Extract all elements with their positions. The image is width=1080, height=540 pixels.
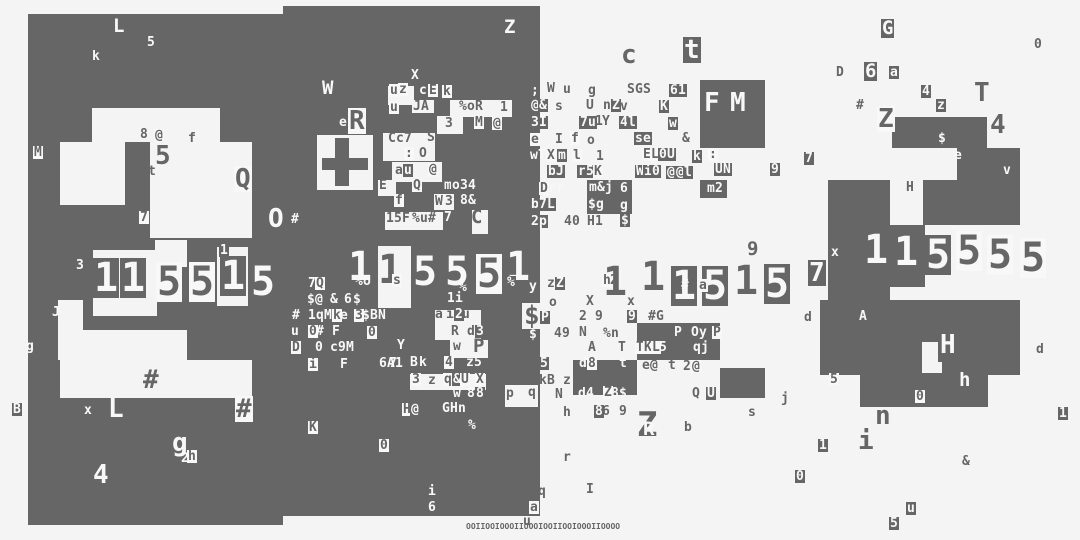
glyph: x xyxy=(84,404,92,417)
glyph: s xyxy=(748,406,756,419)
glyph: 6 xyxy=(379,357,387,370)
glyph: h xyxy=(959,371,970,390)
glyph: z xyxy=(428,374,436,387)
glyph: G xyxy=(442,402,450,415)
glyph: 5 xyxy=(659,341,667,354)
glyph: $ xyxy=(588,198,596,211)
glyph: 5 xyxy=(476,254,502,294)
glyph: p xyxy=(506,387,514,400)
glyph: R xyxy=(475,100,483,113)
glyph: E xyxy=(379,179,387,192)
glyph: r xyxy=(556,182,564,195)
glyph: d xyxy=(1036,343,1044,356)
glyph: F xyxy=(704,90,720,116)
glyph: i xyxy=(858,428,874,454)
glyph: 8 xyxy=(140,128,148,141)
glyph: # xyxy=(316,325,324,338)
glyph: 0 xyxy=(795,470,805,483)
glyph: 9 xyxy=(338,341,346,354)
glyph: r xyxy=(548,182,556,195)
glyph: f xyxy=(394,194,404,207)
glyph: U xyxy=(460,373,470,386)
glyph: s xyxy=(392,274,402,287)
glyph: 5 xyxy=(189,262,215,302)
glyph: 5 xyxy=(156,262,182,302)
blob-block xyxy=(957,300,1020,375)
glyph: x xyxy=(627,295,635,308)
glyph: g xyxy=(596,198,604,211)
glyph: n xyxy=(603,99,611,112)
glyph: 5 xyxy=(251,262,275,302)
glyph: 5 xyxy=(394,212,402,225)
glyph: q xyxy=(538,485,546,498)
glyph: g xyxy=(26,340,34,353)
glyph: : xyxy=(404,147,414,160)
glyph: X xyxy=(586,295,594,308)
glyph: 1 xyxy=(1058,407,1068,420)
glyph: t xyxy=(619,357,627,370)
glyph: N xyxy=(378,309,386,322)
glyph: 7 xyxy=(808,260,826,286)
blob-block xyxy=(957,148,1020,225)
glyph: 0 xyxy=(379,439,389,452)
glyph: g xyxy=(588,84,596,97)
glyph: S xyxy=(427,131,435,144)
glyph: n xyxy=(875,403,891,429)
glyph: O xyxy=(691,326,699,339)
glyph: t xyxy=(668,359,676,372)
glyph: O xyxy=(419,147,427,160)
glyph: A xyxy=(421,100,429,113)
glyph: 7 xyxy=(404,132,412,145)
bottom-strip-text: OOIIOOIOOOIIOOOIOOIIOOIOOOIIOOOO xyxy=(466,523,620,531)
glyph: 6 xyxy=(864,62,877,81)
glyph: 1 xyxy=(677,84,687,97)
glyph: $ xyxy=(529,328,537,341)
glyph: $ xyxy=(938,132,946,145)
glyph: G xyxy=(656,310,664,323)
glyph: a xyxy=(889,66,899,79)
glyph: F xyxy=(340,358,348,371)
glyph: e xyxy=(642,132,652,145)
glyph: 9 xyxy=(627,310,637,323)
glyph: # xyxy=(428,212,436,225)
glyph: @ xyxy=(650,359,658,372)
glyph: F xyxy=(332,325,340,338)
glyph: h xyxy=(388,326,396,339)
glyph: u xyxy=(291,325,299,338)
glyph: & xyxy=(597,181,605,194)
glyph: 1 xyxy=(120,258,146,298)
glyph: C xyxy=(471,208,482,227)
glyph: z xyxy=(936,99,946,112)
glyph: ; xyxy=(530,84,540,97)
glyph: M xyxy=(33,146,43,159)
glyph: & xyxy=(467,194,477,207)
glyph: I xyxy=(538,116,548,129)
glyph: i xyxy=(428,485,436,498)
glyph: u xyxy=(420,212,428,225)
glyph: w xyxy=(530,149,538,162)
glyph: s xyxy=(555,100,563,113)
glyph: 5 xyxy=(1020,238,1046,278)
glitch-art-canvas: L5kM8@f5tQ7O#31115515Jg7Q$@&6$#1qMke3$BN… xyxy=(0,0,1080,540)
glyph: 1 xyxy=(818,439,828,452)
glyph: m xyxy=(557,149,567,162)
glyph: 8 xyxy=(611,387,619,400)
glyph: Q xyxy=(315,277,325,290)
glyph: 4 xyxy=(586,387,594,400)
glyph: M xyxy=(730,90,746,116)
glyph: y xyxy=(699,326,707,339)
glyph: u xyxy=(403,164,413,177)
glyph: U xyxy=(586,99,594,112)
glyph: z xyxy=(547,277,555,290)
glyph: X xyxy=(546,149,556,162)
glyph: C xyxy=(388,132,396,145)
glyph: r xyxy=(563,451,571,464)
glyph: o xyxy=(363,275,371,288)
glyph: K xyxy=(593,165,603,178)
glyph: 5 xyxy=(155,143,171,169)
glyph: w xyxy=(453,340,461,353)
glyph: G xyxy=(881,19,894,38)
glyph: % xyxy=(459,100,467,113)
glyph: l xyxy=(627,116,637,129)
glyph: X xyxy=(475,373,485,386)
blob-block xyxy=(58,300,83,330)
glyph: z xyxy=(466,356,474,369)
glyph: n xyxy=(611,327,619,340)
glyph: W xyxy=(435,195,443,208)
glyph: 5 xyxy=(956,231,982,271)
glyph: 0 xyxy=(315,341,323,354)
glyph: a xyxy=(395,164,403,177)
glyph: 1 xyxy=(500,101,508,114)
glyph: 3 xyxy=(445,195,453,208)
glyph: B xyxy=(370,309,378,322)
glyph: $ xyxy=(307,293,315,306)
glyph: 3 xyxy=(76,259,84,272)
glyph: $ xyxy=(524,303,540,329)
glyph: L xyxy=(108,396,124,422)
glyph: & xyxy=(682,132,690,145)
glyph: 9 xyxy=(562,327,570,340)
glyph: K xyxy=(308,421,318,434)
glyph: k xyxy=(92,50,100,63)
glyph: v xyxy=(1003,164,1011,177)
glyph: 5 xyxy=(146,36,156,49)
glyph: u xyxy=(563,83,571,96)
glyph: q xyxy=(693,341,701,354)
glyph: $ xyxy=(620,214,630,227)
glyph: 3 xyxy=(445,117,453,130)
glyph: 4 xyxy=(467,179,477,192)
glyph: 5 xyxy=(987,235,1013,275)
glyph: T xyxy=(618,341,626,354)
glyph: I xyxy=(586,483,594,496)
glyph: A xyxy=(859,310,867,323)
glyph: H xyxy=(450,402,458,415)
glyph: 1 xyxy=(641,257,665,297)
glyph: S xyxy=(627,83,635,96)
glyph: @ xyxy=(428,163,438,176)
glyph: Z xyxy=(555,277,565,290)
glyph: 6 xyxy=(428,501,436,514)
glyph: 4 xyxy=(564,215,572,228)
glyph: R xyxy=(451,325,459,338)
glyph: q xyxy=(316,309,324,322)
glyph: @ xyxy=(315,293,323,306)
glyph: c xyxy=(621,42,637,68)
glyph: a xyxy=(698,279,708,292)
glyph: T xyxy=(538,149,546,162)
glyph: @ xyxy=(691,360,701,373)
glyph: a xyxy=(529,501,539,514)
glyph: 2 xyxy=(715,182,723,195)
glyph: P xyxy=(540,311,550,324)
glyph: # xyxy=(291,213,299,226)
glyph: 8 xyxy=(467,387,475,400)
glyph: L xyxy=(546,198,556,211)
glyph: D xyxy=(836,66,844,79)
glyph: j xyxy=(701,341,709,354)
glyph: 0 xyxy=(1034,38,1042,51)
glyph: f xyxy=(188,132,196,145)
glyph: e xyxy=(642,359,650,372)
glyph: Y xyxy=(602,115,610,128)
glyph: G xyxy=(635,83,643,96)
glyph: % xyxy=(468,419,476,432)
glyph: c xyxy=(404,326,412,339)
glyph: d xyxy=(578,387,586,400)
blob-block xyxy=(322,158,368,170)
glyph: m xyxy=(589,181,597,194)
glyph: 1 xyxy=(308,309,316,322)
glyph: X xyxy=(411,69,419,82)
glyph: $ xyxy=(362,309,370,322)
glyph: e xyxy=(340,309,348,322)
glyph: 5 xyxy=(764,264,790,304)
glyph: u xyxy=(462,308,470,321)
glyph: g xyxy=(620,199,628,212)
glyph: H xyxy=(587,215,595,228)
glyph: u xyxy=(906,502,916,515)
glyph: # xyxy=(856,99,864,112)
glyph: k xyxy=(442,85,452,98)
glyph: x xyxy=(831,246,839,259)
glyph: 4 xyxy=(93,462,109,488)
glyph: k xyxy=(418,356,428,369)
glyph: 0 xyxy=(367,326,377,339)
glyph: 1 xyxy=(93,258,119,298)
glyph: R xyxy=(643,420,654,439)
glyph: 1 xyxy=(864,230,888,270)
glyph: 5 xyxy=(474,356,482,369)
glyph: h xyxy=(563,406,571,419)
glyph: L xyxy=(113,17,124,36)
glyph: B xyxy=(12,403,22,416)
glyph: # xyxy=(681,279,689,292)
glyph: 5 xyxy=(925,235,951,275)
glyph: 7 xyxy=(443,211,453,224)
glyph: @ xyxy=(492,117,502,130)
glyph: 5 xyxy=(412,252,438,292)
glyph: 9 xyxy=(770,163,780,176)
glyph: 1 xyxy=(596,150,604,163)
glyph: J xyxy=(413,100,421,113)
glyph: S xyxy=(643,83,651,96)
glyph: 6 xyxy=(602,405,610,418)
glyph: J xyxy=(52,306,60,319)
glyph: P xyxy=(473,337,484,356)
glyph: 4 xyxy=(444,356,454,369)
glyph: n xyxy=(458,402,466,415)
glyph: e xyxy=(530,133,540,146)
glyph: # xyxy=(648,310,656,323)
glyph: h xyxy=(187,450,197,463)
glyph: w xyxy=(668,117,678,130)
glyph: & xyxy=(330,293,338,306)
glyph: % xyxy=(506,276,516,289)
glyph: $ xyxy=(352,293,362,306)
glyph: D xyxy=(291,341,301,354)
glyph: # xyxy=(235,396,253,422)
glyph: % xyxy=(412,212,420,225)
blob-block xyxy=(58,330,187,360)
glyph: 6 xyxy=(344,293,352,306)
glyph: j xyxy=(605,181,613,194)
glyph: f xyxy=(570,132,580,145)
glyph: 2 xyxy=(579,310,587,323)
glyph: T xyxy=(974,80,990,106)
glyph: p xyxy=(538,215,548,228)
glyph: a xyxy=(435,308,443,321)
glyph: 4 xyxy=(990,112,1006,138)
glyph: 0 xyxy=(915,390,925,403)
glyph: d xyxy=(804,311,812,324)
glyph: % xyxy=(603,327,611,340)
glyph: 1 xyxy=(595,215,603,228)
glyph: Z xyxy=(504,18,515,37)
glyph: 7 xyxy=(804,152,814,165)
glyph: e xyxy=(954,149,962,162)
glyph: l xyxy=(572,149,582,162)
glyph: P xyxy=(674,326,682,339)
glyph: N xyxy=(722,163,732,176)
glyph: 1 xyxy=(386,212,394,225)
glyph: 5 xyxy=(539,357,549,370)
glyph: Z xyxy=(877,106,895,132)
glyph: c xyxy=(396,132,404,145)
glyph: M xyxy=(346,341,354,354)
glyph: P xyxy=(712,326,722,339)
glyph: w xyxy=(453,387,461,400)
glyph: e xyxy=(339,116,347,129)
glyph: z xyxy=(563,374,571,387)
blob-block xyxy=(720,368,765,398)
glyph: d xyxy=(579,357,587,370)
glyph: 8 xyxy=(587,357,597,370)
glyph: 4 xyxy=(554,327,562,340)
glyph: c xyxy=(419,84,427,97)
glyph: i xyxy=(454,292,464,305)
glyph: J xyxy=(555,165,565,178)
glyph: K xyxy=(659,100,669,113)
glyph: 1 xyxy=(395,357,403,370)
glyph: : xyxy=(708,148,718,161)
glyph: z xyxy=(398,83,408,96)
glyph: 3 xyxy=(411,373,421,386)
glyph: o xyxy=(587,134,595,147)
glyph: v xyxy=(620,100,628,113)
glyph: 9 xyxy=(595,310,603,323)
glyph: 4 xyxy=(921,85,931,98)
glyph: & xyxy=(538,99,548,112)
glyph: H xyxy=(940,332,956,358)
glyph: $ xyxy=(619,387,627,400)
glyph: 0 xyxy=(651,165,661,178)
glyph: Y xyxy=(396,339,406,352)
glyph: 9 xyxy=(619,405,627,418)
glyph: Q xyxy=(234,166,252,192)
glyph: 9 xyxy=(747,240,758,259)
glyph: 8 xyxy=(475,387,485,400)
glyph: b xyxy=(684,421,692,434)
glyph: 6 xyxy=(620,182,628,195)
glyph: t xyxy=(148,165,156,178)
glyph: 7 xyxy=(139,211,149,224)
glyph: , xyxy=(398,104,406,117)
glyph: A xyxy=(387,357,395,370)
glyph: 1 xyxy=(894,232,918,272)
glyph: k xyxy=(692,150,702,163)
glyph: o xyxy=(467,100,475,113)
glyph: l xyxy=(683,166,693,179)
glyph: U xyxy=(706,387,716,400)
glyph: @ xyxy=(410,403,420,416)
glyph: B xyxy=(547,374,555,387)
glyph: 2 xyxy=(683,360,691,373)
glyph: N xyxy=(555,388,563,401)
glyph: o xyxy=(549,296,557,309)
glyph: 1 xyxy=(734,261,758,301)
glyph: i xyxy=(308,358,318,371)
glyph: # xyxy=(143,367,159,393)
glyph: q xyxy=(528,386,536,399)
glyph: t xyxy=(683,37,701,63)
glyph: Q xyxy=(412,179,422,192)
glyph: 5 xyxy=(829,373,839,386)
glyph: 0 xyxy=(572,215,580,228)
glyph: W xyxy=(322,79,333,98)
glyph: F xyxy=(402,212,410,225)
blob-block xyxy=(60,142,125,205)
glyph: H xyxy=(906,181,914,194)
glyph: M xyxy=(324,309,332,322)
glyph: Q xyxy=(692,387,700,400)
glyph: 1 xyxy=(603,262,627,302)
glyph: i xyxy=(446,308,454,321)
glyph: E xyxy=(428,84,438,97)
glyph: M xyxy=(474,116,484,129)
glyph: % xyxy=(355,275,363,288)
glyph: I xyxy=(555,133,563,146)
glyph: R xyxy=(348,108,366,134)
glyph: y xyxy=(529,280,537,293)
glyph: U xyxy=(666,148,676,161)
glyph: j xyxy=(781,392,789,405)
